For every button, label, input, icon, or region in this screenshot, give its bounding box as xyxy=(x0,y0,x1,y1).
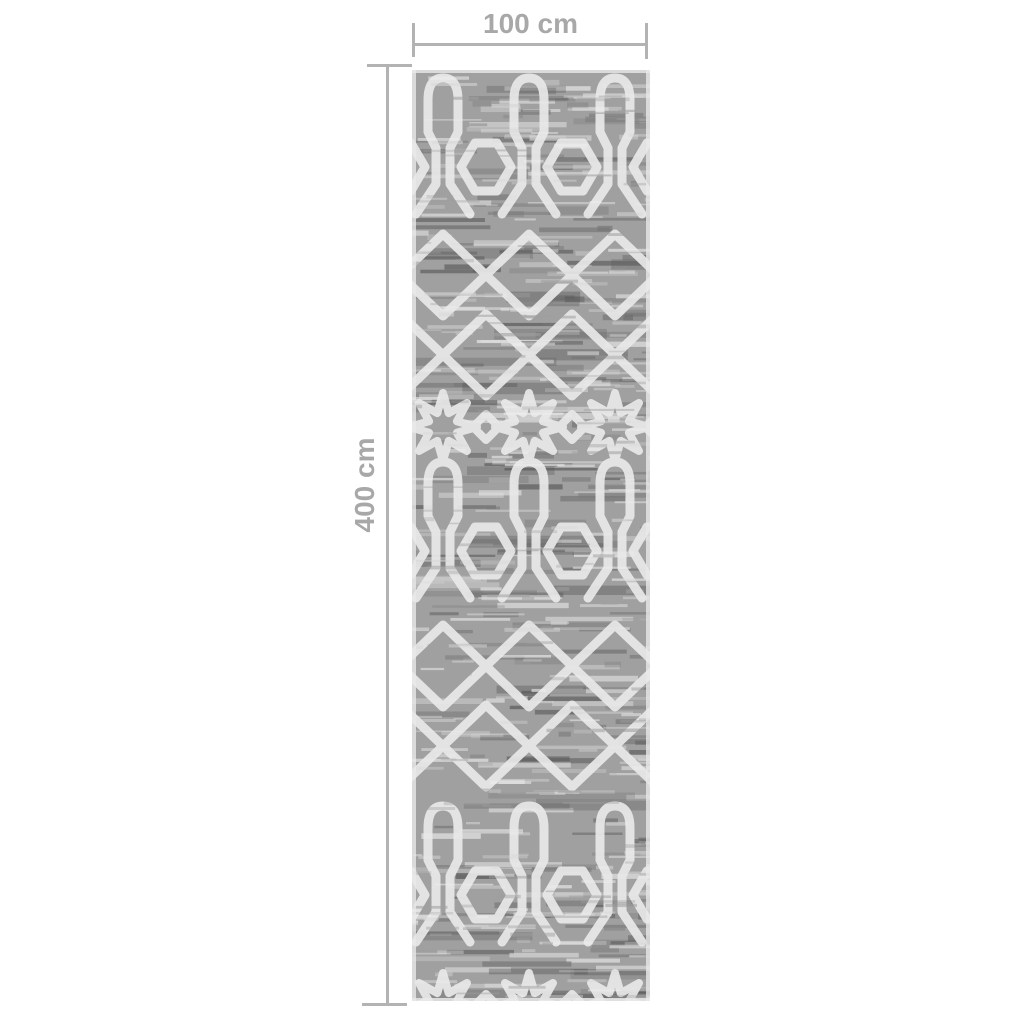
rug-image xyxy=(412,70,650,1001)
width-dimension-label: 100 cm xyxy=(413,6,648,42)
height-dimension-line xyxy=(386,64,389,1006)
product-image-canvas: 100 cm 400 cm xyxy=(0,0,1024,1024)
width-dimension-tick-right xyxy=(645,23,648,59)
rug-edge-bottom xyxy=(412,998,650,1001)
rug-edge-left xyxy=(412,70,416,1001)
width-dimension-line xyxy=(413,43,648,46)
width-dimension-tick-left xyxy=(412,23,415,57)
height-dimension-label: 400 cm xyxy=(347,385,383,585)
rug-edge-top xyxy=(412,70,650,73)
height-dimension-tick-bottom xyxy=(362,1003,407,1006)
rug-edge-right xyxy=(646,70,650,1001)
height-dimension-tick-top xyxy=(367,64,412,67)
